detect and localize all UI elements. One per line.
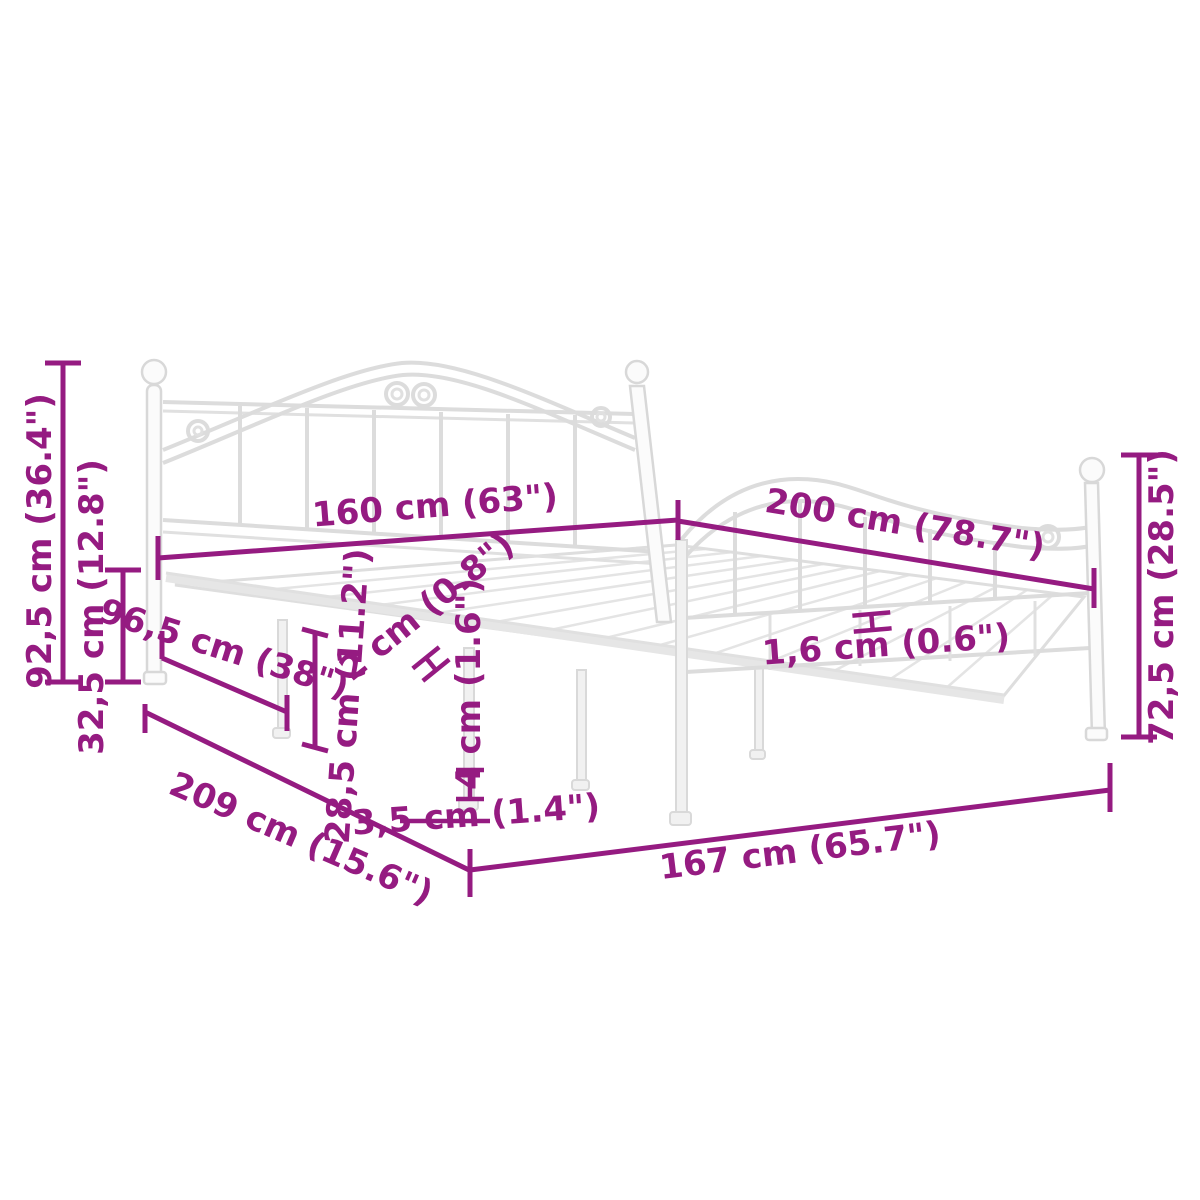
headboard-right-finial [626, 361, 648, 383]
dimension-labels: 92,5 cm (36.4") 32,5 cm (12.8") 160 cm (… [20, 393, 1182, 914]
footboard-front-post [676, 540, 687, 818]
label-leg-thickness: 4 cm (1.6") [449, 578, 489, 790]
footboard-back-foot [1086, 728, 1107, 740]
footboard-front-foot [670, 812, 691, 825]
bed-dimension-diagram: 92,5 cm (36.4") 32,5 cm (12.8") 160 cm (… [0, 0, 1200, 1200]
label-bed-width: 160 cm (63") [311, 476, 560, 535]
footboard-back-finial [1080, 458, 1104, 482]
headboard-left-foot [144, 672, 166, 684]
bed-frame-drawing [142, 360, 1107, 825]
label-headboard-height: 92,5 cm (36.4") [20, 393, 60, 689]
label-footboard-height: 72,5 cm (28.5") [1142, 449, 1182, 745]
footboard-back-post [1085, 483, 1105, 736]
label-frame-width: 167 cm (65.7") [657, 814, 943, 888]
dim-tube-thickness-bracket [413, 647, 449, 681]
product-dimension-image: 92,5 cm (36.4") 32,5 cm (12.8") 160 cm (… [0, 0, 1200, 1200]
headboard-right-post [630, 386, 671, 622]
label-bed-length: 200 cm (78.7") [762, 481, 1048, 567]
label-foot-thickness: 3,5 cm (1.4") [351, 786, 602, 843]
headboard-left-finial [142, 360, 166, 384]
